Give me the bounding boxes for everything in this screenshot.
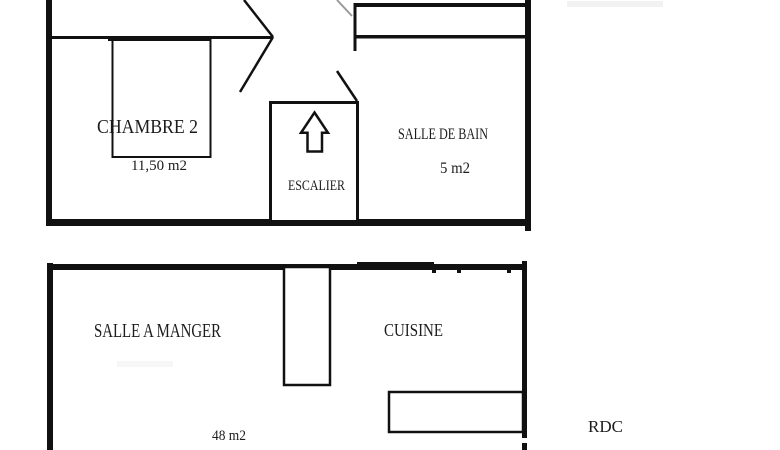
svg-text:11,50 m2: 11,50 m2 [131,158,187,174]
svg-text:48 m2: 48 m2 [212,428,246,444]
svg-text:CHAMBRE 2: CHAMBRE 2 [97,116,198,138]
svg-text:RDC: RDC [588,417,623,436]
svg-text:ESCALIER: ESCALIER [288,178,345,194]
svg-text:SALLE A MANGER: SALLE A MANGER [94,320,221,342]
svg-text:5 m2: 5 m2 [440,160,470,177]
svg-text:CUISINE: CUISINE [384,320,443,340]
svg-text:SALLE DE BAIN: SALLE DE BAIN [398,126,488,143]
